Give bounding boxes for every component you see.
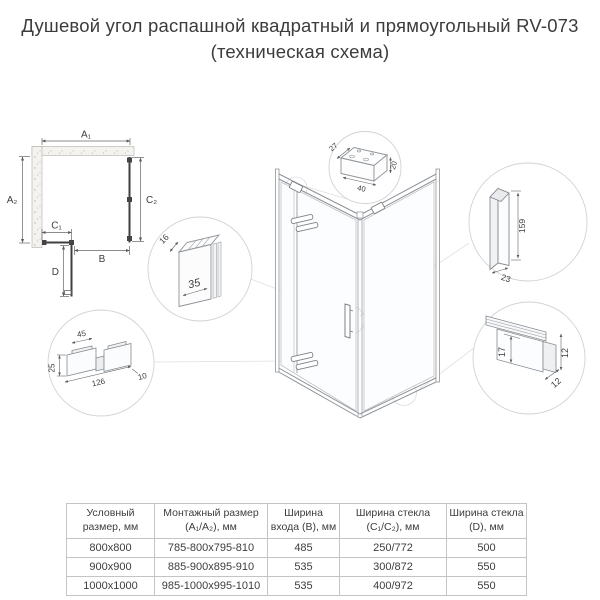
table-cell: 550 — [447, 577, 527, 596]
detail-handle: 159 23 — [469, 163, 587, 284]
table-cell: 250/772 — [340, 539, 447, 558]
table-cell: 985-1000x995-1010 — [155, 577, 268, 596]
iso-view — [276, 169, 440, 418]
detail-bottom-profile: 17 12 12 — [473, 302, 585, 414]
left-glass-panel — [281, 182, 356, 411]
plan-view: A₁ A₂ C₂ C₁ B D — [7, 130, 158, 297]
detail-bracket: 27 20 40 — [327, 132, 401, 204]
plan-wall-top — [32, 147, 134, 156]
table-cell: 800x800 — [67, 539, 155, 558]
table-cell: 900x900 — [67, 558, 155, 577]
table-cell: 300/872 — [340, 558, 447, 577]
handle-height-label: 159 — [517, 219, 527, 233]
left-wall-profile — [276, 169, 280, 372]
table-row: 900x900 885-900x895-910 535 300/872 550 — [67, 558, 527, 577]
bottom-profile-height-label: 12 — [560, 348, 570, 358]
dim-c1-label: C₁ — [51, 221, 62, 232]
technical-scheme-page: Душевой угол распашной квадратный и прям… — [0, 0, 600, 600]
bottom-profile-glass-label: 17 — [497, 347, 507, 357]
table-cell: 535 — [268, 577, 340, 596]
detail-hinge: 45 25 126 10 — [48, 310, 155, 416]
table-cell: 535 — [268, 558, 340, 577]
size-table: Условный размер, мм Монтажный размер (A₁… — [66, 503, 527, 596]
table-cell: 400/972 — [340, 577, 447, 596]
handle-width-label: 23 — [500, 272, 512, 285]
table-cell: 785-800x795-810 — [155, 539, 268, 558]
header-glass-width-c: Ширина стекла (C₁/C₂), мм — [340, 504, 447, 539]
dim-b-label: B — [99, 254, 106, 265]
right-wall-profile — [436, 169, 440, 382]
dim-d-label: D — [52, 267, 59, 278]
table-header-row: Условный размер, мм Монтажный размер (A₁… — [67, 504, 527, 539]
technical-drawing: A₁ A₂ C₂ C₁ B D — [0, 0, 600, 500]
plan-glass-brackets — [42, 158, 132, 246]
table-row: 800x800 785-800x795-810 485 250/772 500 — [67, 539, 527, 558]
hinge-height-label: 25 — [48, 363, 57, 372]
header-mounting-size: Монтажный размер (A₁/A₂), мм — [155, 504, 268, 539]
detail-wall-profile: 16 35 — [148, 217, 252, 321]
header-entry-width: Ширина входа (B), мм — [268, 504, 340, 539]
table-cell: 1000x1000 — [67, 577, 155, 596]
plan-wall-left — [32, 147, 42, 248]
right-glass-panel — [364, 182, 434, 411]
header-glass-width-d: Ширина стекла (D), мм — [447, 504, 527, 539]
table-cell: 500 — [447, 539, 527, 558]
dim-a2-label: A₂ — [7, 195, 18, 206]
table-cell: 885-900x895-910 — [155, 558, 268, 577]
table-row: 1000x1000 985-1000x995-1010 535 400/972 … — [67, 577, 527, 596]
table-cell: 485 — [268, 539, 340, 558]
table-cell: 550 — [447, 558, 527, 577]
dim-c2-label: C₂ — [146, 195, 157, 206]
header-nominal-size: Условный размер, мм — [67, 504, 155, 539]
plan-door-handle — [65, 291, 72, 295]
dim-a1-label: A₁ — [81, 130, 92, 141]
corner-edge — [357, 212, 363, 416]
